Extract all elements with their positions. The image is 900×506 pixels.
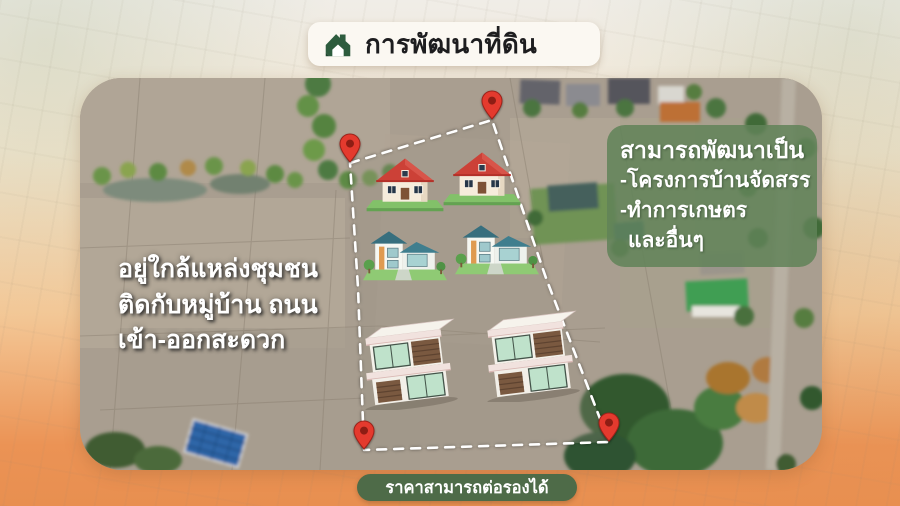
info-box-item: -ทำการเกษตร (620, 196, 809, 226)
location-caption: อยู่ใกล้แหล่งชุมชน ติดกับหมู่บ้าน ถนน เข… (118, 252, 358, 359)
page-title: การพัฒนาที่ดิน (365, 31, 537, 57)
map-pin-top (481, 90, 503, 120)
house-red-cottage-1 (365, 152, 445, 213)
development-info-box: สามารถพัฒนาเป็น -โครงการบ้านจัดสรร -ทำกา… (607, 125, 817, 267)
price-badge: ราคาสามารถต่อรองได้ (357, 474, 577, 501)
location-caption-line: ติดกับหมู่บ้าน ถนน (118, 288, 358, 324)
aerial-photo: อยู่ใกล้แหล่งชุมชน ติดกับหมู่บ้าน ถนน เข… (80, 78, 822, 470)
map-pin-bottom-left (353, 420, 375, 450)
house-teal-1 (363, 222, 447, 285)
info-box-item: และอื่นๆ (620, 226, 809, 256)
header-banner: การพัฒนาที่ดิน (308, 22, 600, 66)
house-teal-2 (455, 216, 539, 279)
modern-building-1 (350, 318, 462, 410)
poster-slide: การพัฒนาที่ดิน (0, 0, 900, 506)
info-box-title: สามารถพัฒนาเป็น (620, 134, 809, 166)
info-box-item: -โครงการบ้านจัดสรร (620, 166, 809, 196)
modern-building-2 (472, 310, 584, 402)
map-pin-upper-left (339, 133, 361, 163)
location-caption-line: เข้า-ออกสะดวก (118, 323, 358, 359)
map-pin-bottom-right (598, 412, 620, 442)
location-caption-line: อยู่ใกล้แหล่งชุมชน (118, 252, 358, 288)
green-house-icon (321, 27, 355, 61)
house-red-cottage-2 (442, 146, 522, 207)
